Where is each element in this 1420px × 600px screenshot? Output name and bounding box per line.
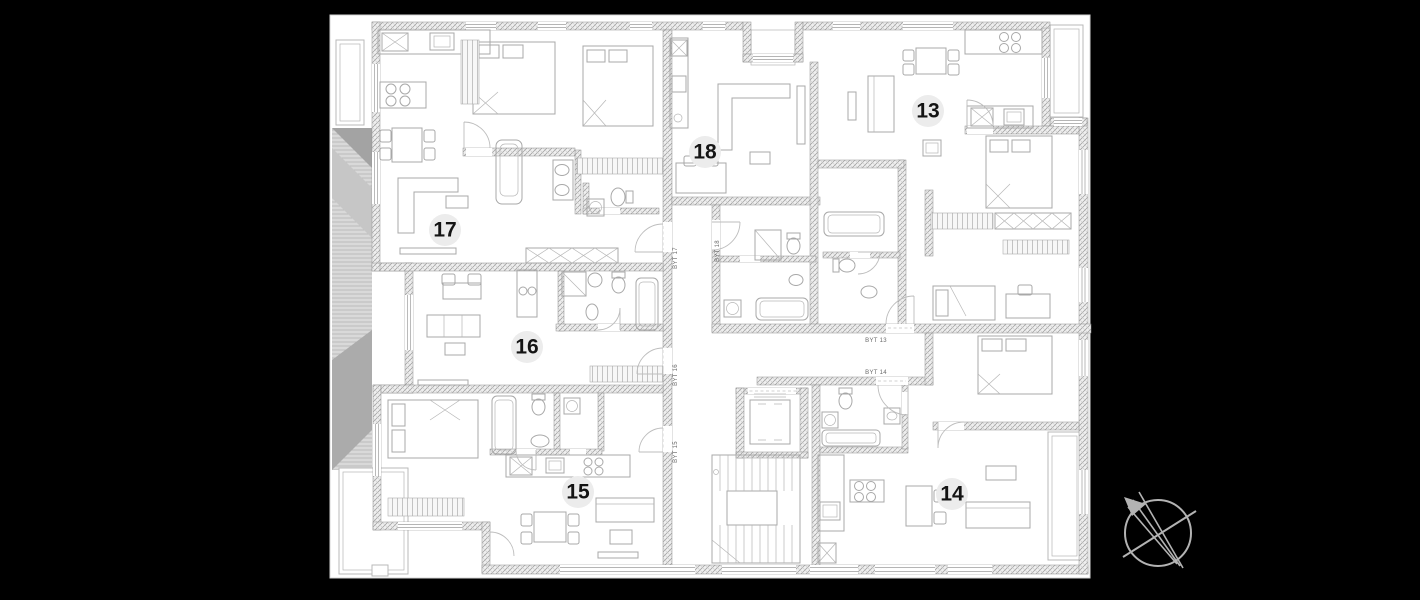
- unit-number: 17: [433, 219, 456, 242]
- terrace-shading: [332, 128, 372, 470]
- unit-badge-14: 14: [936, 478, 968, 510]
- balcony-bottom-right: [1048, 432, 1081, 560]
- unit-badge-15: 15: [562, 476, 594, 508]
- apartment-label: BYT 16: [673, 364, 679, 386]
- apartment-label: BYT 18: [715, 240, 721, 262]
- apartment-label: BYT 15: [673, 441, 679, 463]
- unit-number: 15: [566, 481, 590, 504]
- compass-icon: [1123, 492, 1196, 568]
- apartment-label: BYT 17: [673, 247, 679, 269]
- floorplan-viewport: 131415161718 BYT 17BYT 18BYT 16BYT 15BYT…: [0, 0, 1420, 600]
- unit-number: 14: [940, 483, 964, 506]
- unit-number: 16: [515, 336, 538, 359]
- balcony-top-left: [336, 40, 364, 125]
- apartment-label: BYT 14: [865, 370, 887, 376]
- balcony-top-right: [1050, 25, 1083, 117]
- unit-badge-13: 13: [912, 95, 944, 127]
- apartment-label: BYT 13: [865, 338, 887, 344]
- unit-badge-18: 18: [689, 136, 721, 168]
- plan-canvas: [330, 15, 1090, 578]
- unit-badge-17: 17: [429, 214, 461, 246]
- floor-plan-drawing: 131415161718 BYT 17BYT 18BYT 16BYT 15BYT…: [0, 0, 1420, 600]
- unit-number: 13: [916, 100, 939, 123]
- unit-number: 18: [693, 141, 717, 164]
- unit-badge-16: 16: [511, 331, 543, 363]
